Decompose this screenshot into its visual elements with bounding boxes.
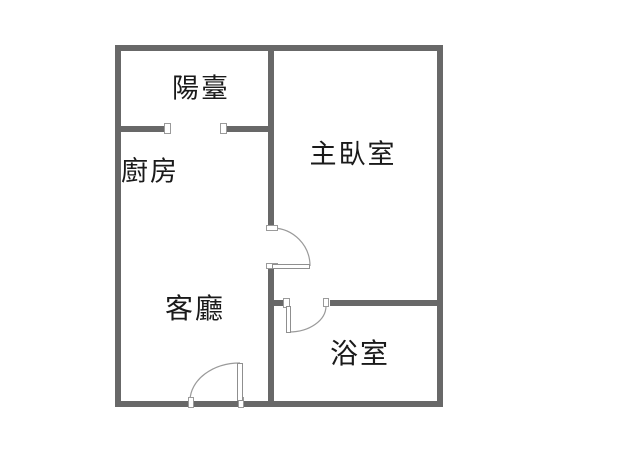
- bedroom-door-arc: [273, 228, 310, 266]
- entrance-door-arc: [190, 363, 240, 400]
- floor-plan: 陽臺 廚房 主臥室 客廳 浴室: [0, 0, 638, 460]
- room-label-master-bedroom: 主臥室: [310, 133, 397, 172]
- balcony-opening-jamb-right: [220, 123, 227, 134]
- room-label-balcony: 陽臺: [172, 67, 230, 106]
- room-label-bathroom: 浴室: [330, 332, 390, 372]
- wall-balcony-left: [121, 126, 164, 132]
- wall-bathroom-left-stub: [274, 300, 283, 306]
- wall-bathroom-right: [330, 300, 437, 306]
- bedroom-door-jamb-top: [266, 225, 278, 231]
- room-label-kitchen: 廚房: [121, 150, 179, 189]
- wall-outer-right: [437, 45, 443, 407]
- door-swing-arcs: [0, 0, 638, 460]
- wall-balcony-right: [227, 126, 268, 132]
- wall-central-lower: [268, 269, 274, 407]
- balcony-opening-jamb-left: [164, 123, 171, 134]
- bedroom-door-leaf: [272, 264, 310, 269]
- entrance-door-jamb-left: [188, 397, 194, 408]
- room-label-living-room: 客廳: [165, 287, 225, 327]
- wall-central-upper: [268, 45, 274, 225]
- wall-outer-left: [115, 45, 121, 407]
- bathroom-door-arc: [289, 306, 326, 332]
- wall-outer-top: [115, 45, 443, 51]
- entrance-door-leaf: [237, 363, 243, 401]
- wall-outer-bottom: [115, 401, 443, 407]
- bathroom-door-leaf: [286, 306, 291, 333]
- bathroom-door-jamb-right: [323, 298, 329, 307]
